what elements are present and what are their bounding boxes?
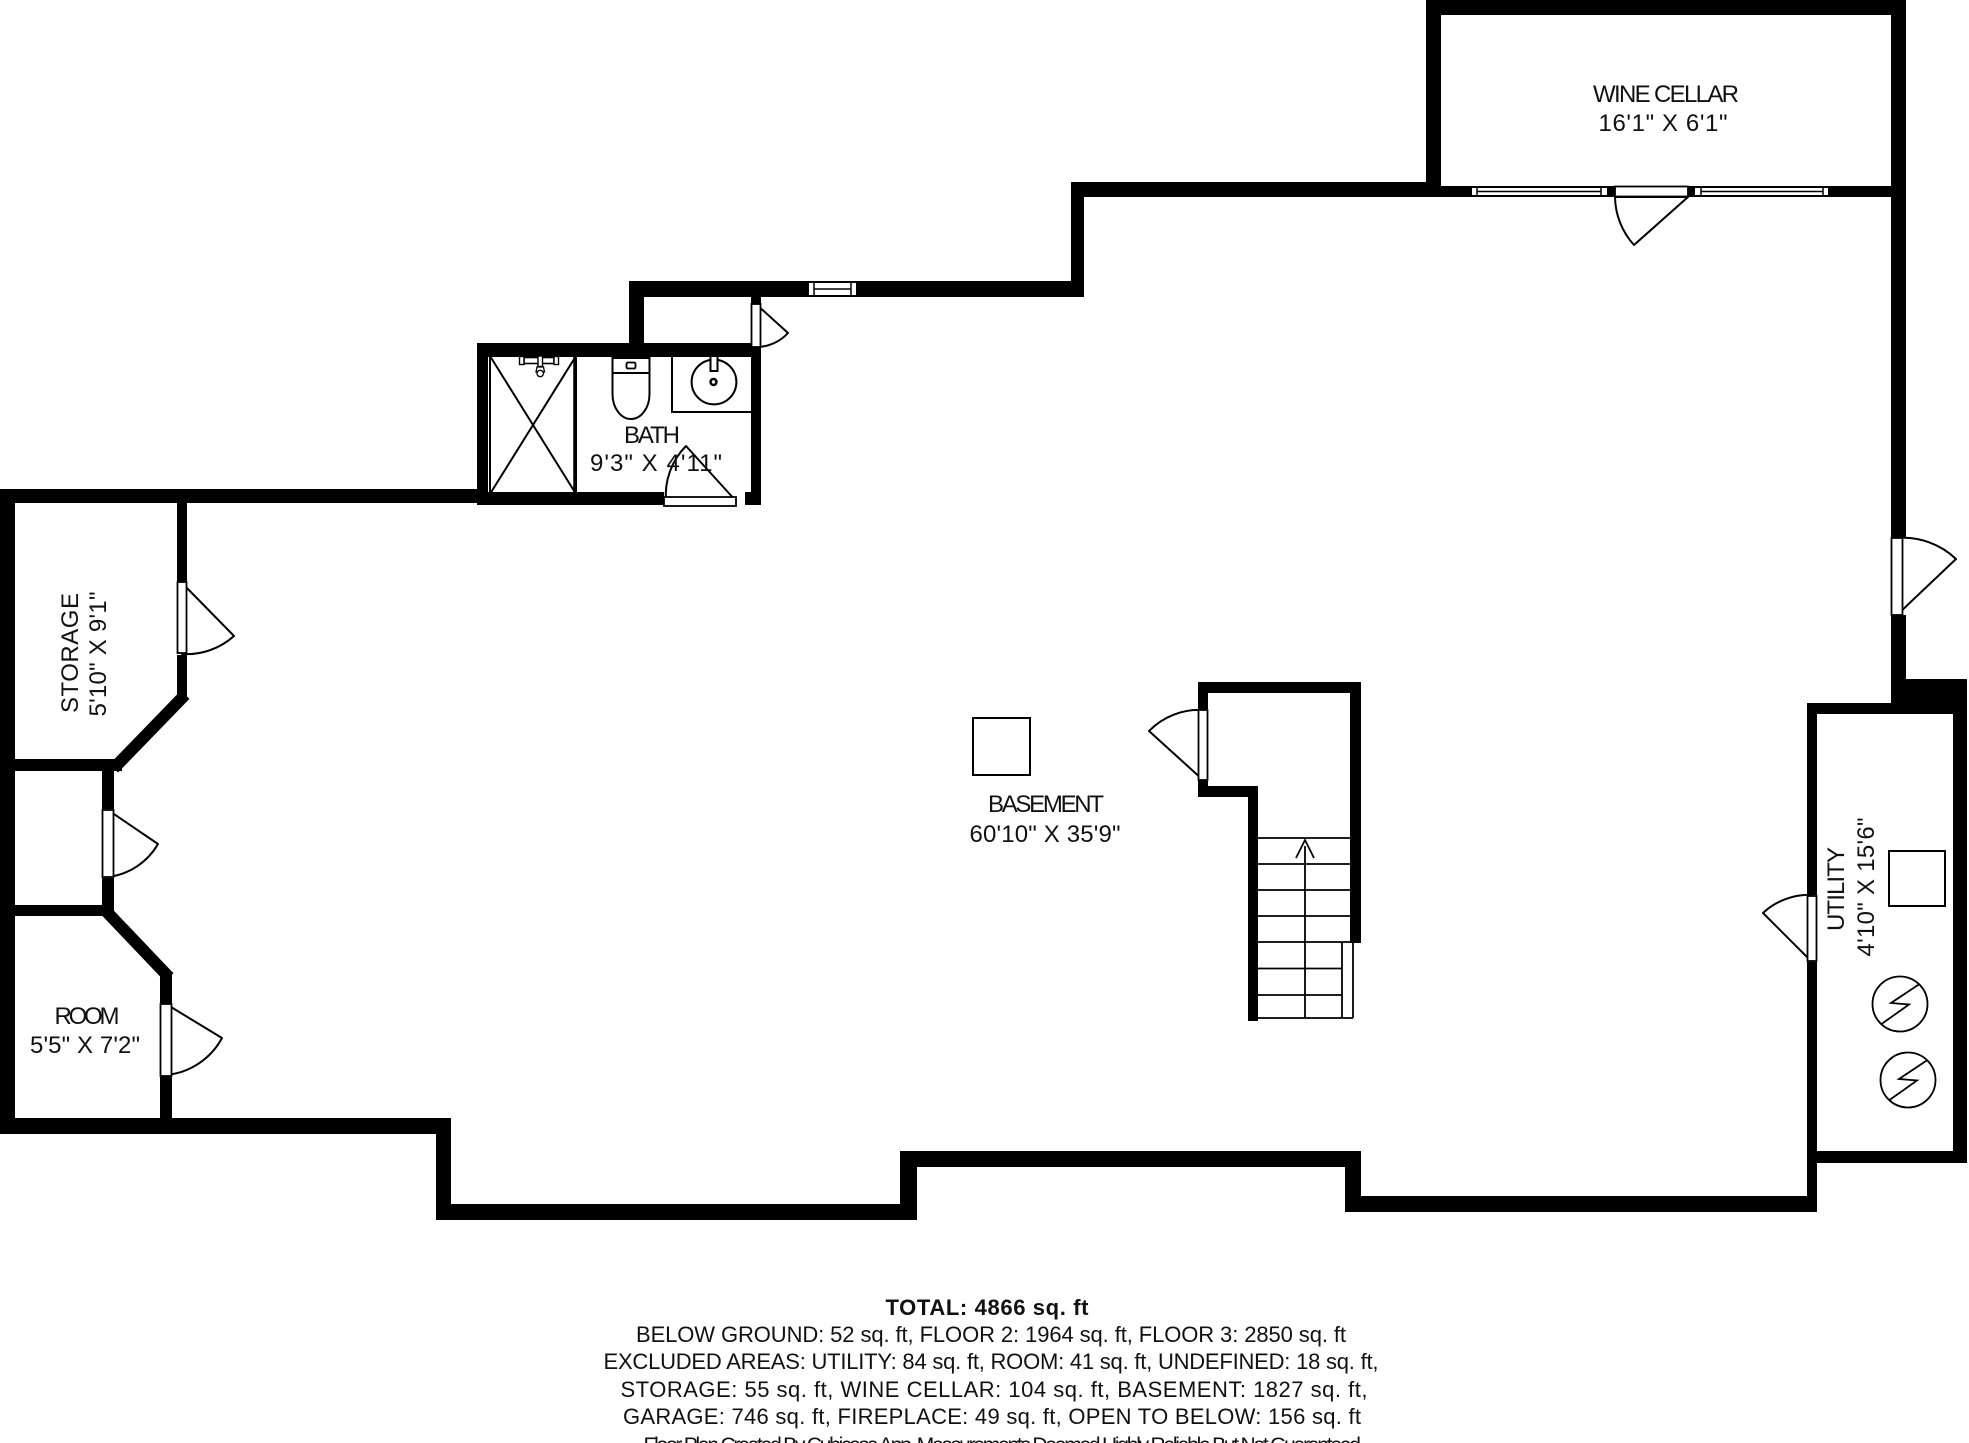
svg-text:BELOW GROUND: 52 sq. ft, FLOOR: BELOW GROUND: 52 sq. ft, FLOOR 2: 1964 s… — [636, 1322, 1346, 1347]
svg-text:WINE CELLAR: WINE CELLAR — [1593, 81, 1739, 108]
svg-text:4'10" X 15'6": 4'10" X 15'6" — [1853, 818, 1880, 957]
svg-text:5'10" X 9'1": 5'10" X 9'1" — [85, 592, 112, 717]
svg-text:BASEMENT: BASEMENT — [988, 791, 1104, 818]
svg-text:60'10" X 35'9": 60'10" X 35'9" — [970, 821, 1121, 848]
svg-text:STORAGE: 55 sq. ft, WINE CELLA: STORAGE: 55 sq. ft, WINE CELLAR: 104 sq.… — [621, 1377, 1368, 1402]
svg-text:STORAGE: STORAGE — [57, 593, 84, 713]
svg-text:GARAGE: 746 sq. ft, FIREPLACE:: GARAGE: 746 sq. ft, FIREPLACE: 49 sq. ft… — [623, 1404, 1361, 1429]
svg-text:BATH: BATH — [624, 422, 680, 449]
svg-text:5'5" X 7'2": 5'5" X 7'2" — [30, 1032, 140, 1059]
svg-text:UTILITY: UTILITY — [1823, 847, 1850, 931]
svg-text:Floor Plan Created By Cubicasa: Floor Plan Created By Cubicasa App. Meas… — [644, 1434, 1365, 1443]
svg-text:ROOM: ROOM — [55, 1003, 120, 1030]
svg-text:TOTAL: 4866 sq. ft: TOTAL: 4866 sq. ft — [886, 1295, 1090, 1320]
svg-text:16'1" X 6'1": 16'1" X 6'1" — [1599, 110, 1728, 137]
svg-text:EXCLUDED AREAS: UTILITY: 84 sq: EXCLUDED AREAS: UTILITY: 84 sq. ft, ROOM… — [604, 1349, 1379, 1374]
svg-text:9'3" X 4'11": 9'3" X 4'11" — [590, 450, 722, 477]
